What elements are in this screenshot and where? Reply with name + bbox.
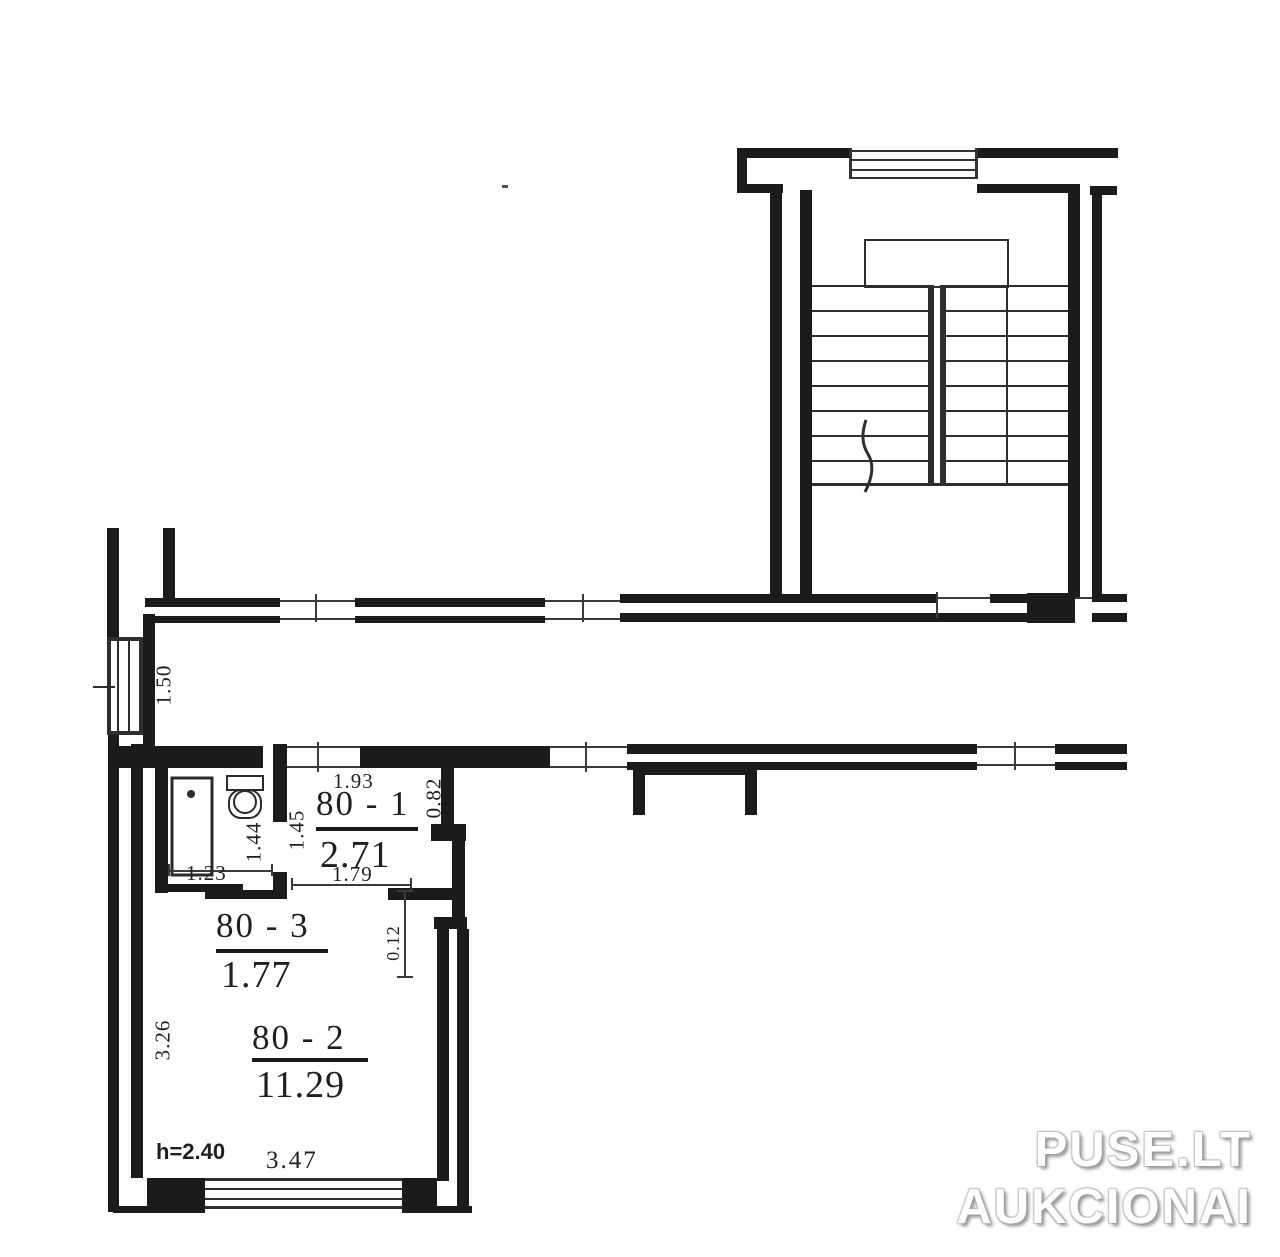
dim-bath-right-height: 1.44 — [244, 822, 265, 863]
room-80-1-fraction-line — [316, 827, 418, 831]
toilet-tank — [227, 776, 263, 790]
room-80-3-area: 1.77 — [221, 956, 292, 994]
dim-ceiling-height: h=2.40 — [156, 1141, 225, 1163]
dim-corridor-window-width: 1.50 — [154, 665, 175, 706]
watermark: PUSE.LT AUKCIONAI — [956, 1122, 1252, 1236]
stair-break-mark — [863, 420, 872, 492]
stairwell-window — [849, 148, 978, 179]
watermark-line-2: AUKCIONAI — [956, 1179, 1252, 1236]
floor-plan-drawing — [0, 0, 1280, 1257]
bathtub-drain — [187, 790, 195, 798]
stair-divider — [928, 285, 946, 485]
bottom-wall-window — [113, 1178, 472, 1213]
room-80-2-number: 80 - 2 — [252, 1020, 346, 1055]
stair-flight-edge — [1006, 287, 1008, 483]
dim-hall-left-height: 1.45 — [287, 810, 308, 851]
stairwell-walls — [737, 148, 1118, 602]
staircase — [812, 240, 1068, 492]
room-80-3-fraction-line — [216, 949, 328, 953]
artifact-dot — [502, 185, 508, 188]
dim-hall-right-height: 0.82 — [424, 778, 445, 819]
watermark-line-1: PUSE.LT — [956, 1122, 1252, 1179]
corridor-left-window — [93, 637, 143, 735]
dim-wall-jog: 0.12 — [384, 925, 402, 961]
dim-room-bottom-width: 3.47 — [266, 1148, 318, 1173]
toilet-seat — [234, 791, 256, 813]
dim-hall-bottom-width: 1.79 — [332, 864, 373, 885]
neighbour-wall-stubs — [633, 764, 757, 815]
floor-plan-canvas: 1.93 80 - 1 2.71 1.79 0.82 1.45 1.44 1.2… — [0, 0, 1280, 1257]
room-80-1-number: 80 - 1 — [316, 786, 410, 821]
room-80-3-number: 80 - 3 — [216, 908, 310, 943]
room-80-2-fraction-line — [252, 1058, 368, 1062]
dim-bath-width: 1.23 — [186, 863, 227, 884]
room-80-2-area: 11.29 — [256, 1066, 345, 1104]
dim-room-left-height: 3.26 — [153, 1020, 174, 1061]
